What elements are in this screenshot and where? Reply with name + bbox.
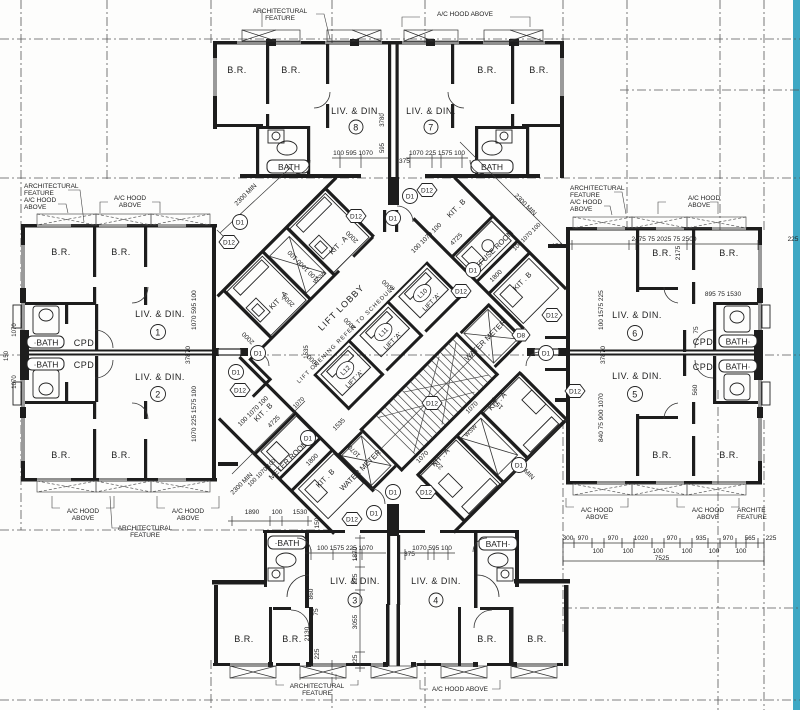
- svg-text:FEATURE: FEATURE: [130, 532, 161, 539]
- svg-text:A/C HOOD: A/C HOOD: [172, 508, 204, 515]
- svg-text:1870: 1870: [352, 546, 359, 561]
- svg-text:B.R.: B.R.: [719, 450, 739, 460]
- svg-text:B.R.: B.R.: [51, 247, 71, 257]
- svg-text:LIV. & DIN.: LIV. & DIN.: [331, 106, 381, 116]
- svg-text:1070 225 1575 100: 1070 225 1575 100: [191, 386, 198, 442]
- svg-text:1: 1: [155, 328, 161, 338]
- svg-text:1070: 1070: [12, 375, 18, 389]
- svg-text:FEATURE: FEATURE: [737, 514, 768, 521]
- svg-text:8: 8: [353, 123, 359, 133]
- svg-text:A/C HOOD: A/C HOOD: [24, 197, 56, 204]
- svg-text:BATH: BATH: [481, 162, 503, 172]
- svg-text:100: 100: [593, 548, 604, 555]
- svg-text:ARCHITECTURAL: ARCHITECTURAL: [253, 8, 308, 15]
- svg-text:100 1575 225 1070: 100 1575 225 1070: [317, 545, 373, 552]
- svg-text:37870: 37870: [600, 346, 607, 364]
- svg-text:840 75 900 1070: 840 75 900 1070: [598, 393, 605, 442]
- svg-text:225: 225: [788, 236, 799, 243]
- svg-text:B.R.: B.R.: [652, 450, 672, 460]
- svg-text:ABOVE: ABOVE: [570, 206, 593, 213]
- svg-text:CPD: CPD: [74, 360, 95, 370]
- svg-text:D1: D1: [236, 220, 245, 227]
- svg-text:B.R.: B.R.: [111, 450, 131, 460]
- svg-text:A/C HOOD: A/C HOOD: [688, 195, 720, 202]
- svg-text:A/C HOOD: A/C HOOD: [67, 508, 99, 515]
- svg-text:4: 4: [433, 596, 439, 606]
- svg-text:B.R.: B.R.: [234, 634, 254, 644]
- svg-text:100: 100: [272, 509, 283, 516]
- svg-text:B.R.: B.R.: [527, 634, 547, 644]
- svg-text:1070 595 100: 1070 595 100: [412, 545, 452, 552]
- svg-text:ABOVE: ABOVE: [24, 204, 47, 211]
- svg-text:FEATURE: FEATURE: [302, 690, 333, 697]
- svg-text:BATH·: BATH·: [726, 362, 751, 372]
- svg-text:ABOVE: ABOVE: [586, 514, 609, 521]
- svg-text:ABOVE: ABOVE: [177, 515, 200, 522]
- svg-text:LIV. & DIN.: LIV. & DIN.: [406, 106, 456, 116]
- svg-text:100: 100: [623, 548, 634, 555]
- svg-text:75: 75: [693, 326, 700, 334]
- svg-text:100: 100: [709, 548, 720, 555]
- svg-text:3055: 3055: [352, 614, 359, 629]
- svg-text:FEATURE: FEATURE: [265, 15, 296, 22]
- svg-text:75: 75: [313, 608, 320, 616]
- svg-text:LIV. & DIN.: LIV. & DIN.: [135, 309, 185, 319]
- svg-text:D12: D12: [420, 490, 432, 497]
- svg-text:A/C HOOD ABOVE: A/C HOOD ABOVE: [437, 11, 494, 18]
- svg-text:CPD: CPD: [74, 338, 95, 348]
- svg-text:150: 150: [314, 517, 321, 528]
- svg-text:D1: D1: [389, 216, 398, 223]
- svg-text:FEATURE: FEATURE: [24, 190, 55, 197]
- svg-text:B.R.: B.R.: [227, 65, 247, 75]
- svg-text:D12: D12: [350, 214, 362, 221]
- svg-text:300: 300: [563, 535, 574, 542]
- svg-text:3780: 3780: [380, 113, 386, 127]
- svg-text:·BATH: ·BATH: [34, 360, 59, 370]
- svg-text:1070 225 1575 100: 1070 225 1575 100: [409, 150, 465, 157]
- svg-text:3: 3: [352, 596, 358, 606]
- svg-text:225: 225: [766, 535, 777, 542]
- svg-text:225: 225: [314, 648, 321, 659]
- svg-text:ABOVE: ABOVE: [119, 202, 142, 209]
- svg-text:A/C HOOD: A/C HOOD: [570, 199, 602, 206]
- svg-text:ARCHITE: ARCHITE: [737, 507, 766, 514]
- svg-text:D1: D1: [232, 370, 241, 377]
- svg-text:D1: D1: [406, 194, 415, 201]
- svg-text:1530: 1530: [293, 509, 308, 516]
- svg-text:D12: D12: [223, 240, 235, 247]
- svg-text:LIV. & DIN.: LIV. & DIN.: [612, 371, 662, 381]
- svg-text:150: 150: [4, 350, 10, 361]
- svg-text:B.R.: B.R.: [529, 65, 549, 75]
- svg-text:D12: D12: [426, 401, 438, 408]
- svg-text:B.R.: B.R.: [51, 450, 71, 460]
- svg-text:860: 860: [308, 588, 315, 599]
- svg-text:6: 6: [632, 329, 638, 339]
- svg-text:1890: 1890: [245, 509, 260, 516]
- svg-text:375: 375: [399, 158, 410, 165]
- svg-text:970: 970: [578, 535, 589, 542]
- svg-text:A/C HOOD ABOVE: A/C HOOD ABOVE: [432, 686, 489, 693]
- svg-text:100 595 1070: 100 595 1070: [333, 150, 373, 157]
- svg-text:ARCHITECTURAL: ARCHITECTURAL: [570, 185, 625, 192]
- svg-text:D12: D12: [421, 188, 433, 195]
- svg-text:ABOVE: ABOVE: [72, 515, 95, 522]
- svg-text:100: 100: [736, 548, 747, 555]
- svg-text:7: 7: [428, 123, 434, 133]
- svg-text:970: 970: [667, 535, 678, 542]
- svg-text:ARCHITECTURAL: ARCHITECTURAL: [24, 183, 79, 190]
- svg-text:1535: 1535: [304, 345, 310, 359]
- svg-text:895 75 1530: 895 75 1530: [705, 291, 742, 298]
- svg-text:LIV. & DIN.: LIV. & DIN.: [135, 372, 185, 382]
- svg-text:1020: 1020: [634, 535, 649, 542]
- svg-text:100 1575 225: 100 1575 225: [598, 290, 605, 330]
- svg-text:D12: D12: [569, 389, 581, 396]
- svg-text:D12: D12: [346, 517, 358, 524]
- svg-text:B.R.: B.R.: [282, 634, 302, 644]
- svg-text:560: 560: [692, 384, 699, 395]
- svg-text:225: 225: [352, 573, 359, 584]
- svg-text:B.R.: B.R.: [111, 247, 131, 257]
- svg-text:2130: 2130: [304, 626, 311, 641]
- svg-text:1070: 1070: [12, 323, 18, 337]
- svg-text:375: 375: [404, 551, 415, 558]
- svg-text:D1: D1: [304, 436, 313, 443]
- svg-text:B.R.: B.R.: [477, 634, 497, 644]
- svg-text:970: 970: [723, 535, 734, 542]
- svg-text:595: 595: [380, 142, 386, 153]
- svg-text:B.R.: B.R.: [281, 65, 301, 75]
- svg-text:FEATURE: FEATURE: [570, 192, 601, 199]
- svg-text:A/C HOOD: A/C HOOD: [581, 507, 613, 514]
- svg-text:1070 595 100: 1070 595 100: [191, 290, 198, 330]
- svg-text:ABOVE: ABOVE: [697, 514, 720, 521]
- svg-text:·BATH: ·BATH: [34, 338, 59, 348]
- svg-text:A/C HOOD: A/C HOOD: [692, 507, 724, 514]
- svg-text:D8: D8: [517, 333, 526, 340]
- svg-text:935: 935: [696, 535, 707, 542]
- svg-text:ARCHITECTURAL: ARCHITECTURAL: [290, 683, 345, 690]
- svg-text:D1: D1: [542, 351, 551, 358]
- svg-text:CPD: CPD: [693, 362, 714, 372]
- svg-text:225: 225: [352, 654, 359, 665]
- svg-text:100: 100: [653, 548, 664, 555]
- svg-text:B.R.: B.R.: [477, 65, 497, 75]
- svg-text:ARCHITECTURAL: ARCHITECTURAL: [118, 525, 173, 532]
- svg-text:A/C HOOD: A/C HOOD: [114, 195, 146, 202]
- svg-text:2: 2: [155, 390, 161, 400]
- svg-text:D12: D12: [234, 388, 246, 395]
- svg-text:LIV. & DIN.: LIV. & DIN.: [612, 310, 662, 320]
- svg-text:D1: D1: [469, 268, 478, 275]
- svg-text:B.R.: B.R.: [719, 248, 739, 258]
- svg-text:D12: D12: [546, 313, 558, 320]
- svg-text:2175: 2175: [675, 245, 682, 260]
- svg-text:5: 5: [632, 390, 638, 400]
- svg-text:D12: D12: [455, 289, 467, 296]
- svg-text:B.R.: B.R.: [652, 248, 672, 258]
- svg-text:100: 100: [682, 548, 693, 555]
- svg-text:·BATH: ·BATH: [275, 538, 300, 548]
- svg-text:970: 970: [608, 535, 619, 542]
- svg-text:D1: D1: [370, 511, 379, 518]
- svg-text:D1: D1: [515, 463, 524, 470]
- svg-text:BATH·: BATH·: [726, 337, 751, 347]
- svg-text:ABOVE: ABOVE: [688, 202, 711, 209]
- svg-text:37870: 37870: [185, 346, 192, 364]
- svg-text:D1: D1: [389, 490, 398, 497]
- svg-text:D1: D1: [254, 351, 263, 358]
- svg-text:LIV. & DIN.: LIV. & DIN.: [411, 576, 461, 586]
- svg-text:BATH·: BATH·: [486, 539, 511, 549]
